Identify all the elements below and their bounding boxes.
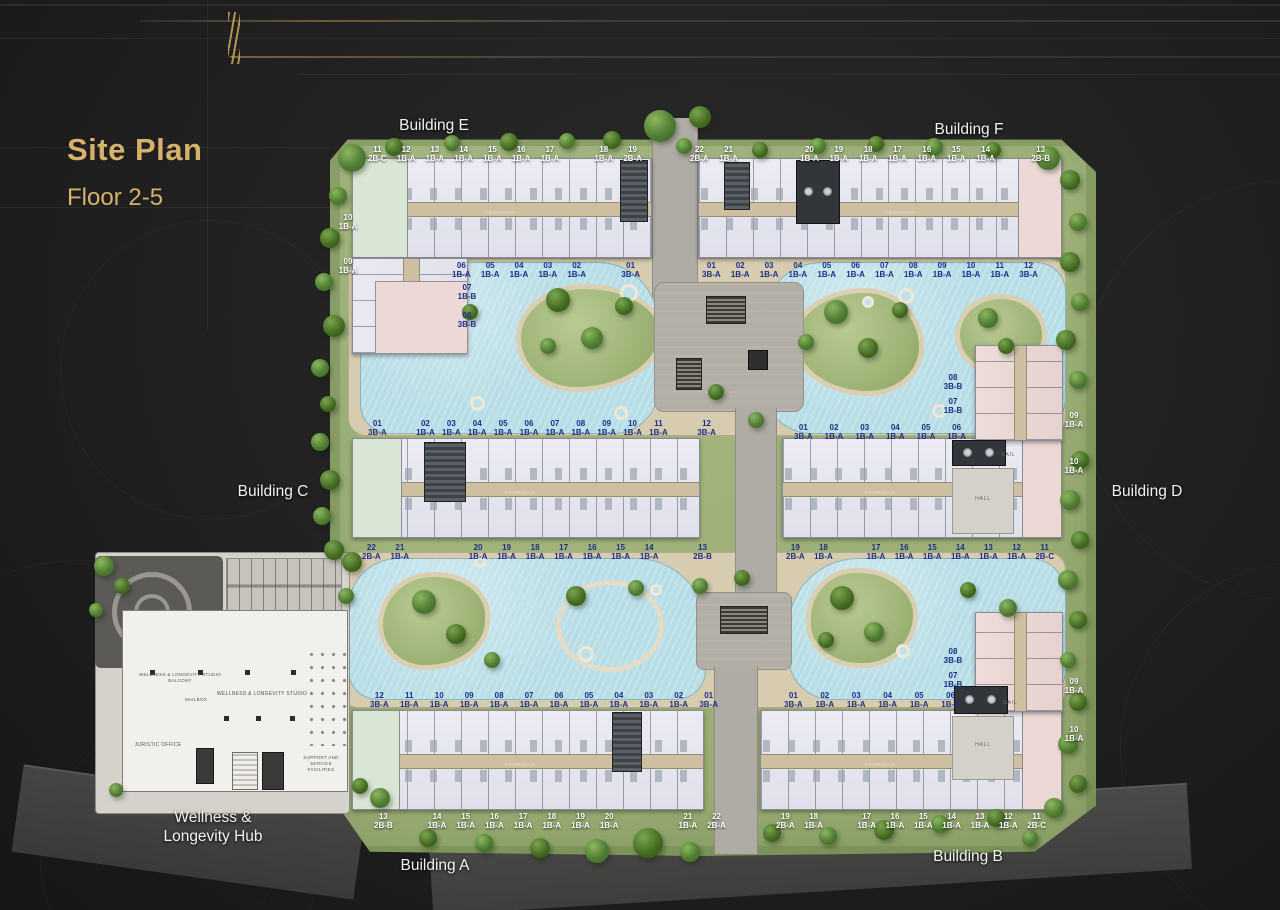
unit-label: 051B-A — [580, 692, 599, 710]
unit-label — [596, 262, 611, 280]
tree-icon — [585, 839, 609, 863]
tree-icon — [858, 338, 878, 358]
tree-icon — [1056, 330, 1076, 350]
unit-label — [394, 420, 409, 438]
tree-icon — [1022, 830, 1038, 846]
unit-row-d-top: 013B-A021B-A031B-A041B-A051B-A061B-A — [794, 424, 966, 442]
tree-icon — [114, 578, 130, 594]
unit-row-c-bottom: 222B-A211B-A201B-A191B-A181B-A171B-A161B… — [362, 544, 712, 562]
tree-icon — [313, 507, 331, 525]
unit-fixtures — [783, 468, 1061, 480]
unit-label: 013B-A — [702, 262, 721, 280]
hub-juristic-label: JURISTIC OFFICE — [135, 742, 182, 749]
unit-label: 151B-A — [483, 146, 502, 164]
unit-label: 111B-A — [649, 420, 668, 438]
tree-icon — [1060, 252, 1080, 272]
hub-stairs — [232, 752, 258, 790]
stair-core — [620, 160, 648, 222]
unit-label: 191B-A — [829, 146, 848, 164]
unit-label: 041B-A — [886, 424, 905, 442]
spa-circle — [896, 644, 910, 658]
tree-icon — [484, 652, 500, 668]
tree-icon — [998, 338, 1014, 354]
unit-label: 031B-A — [855, 424, 874, 442]
unit-label: 041B-A — [789, 262, 808, 280]
tree-icon — [370, 788, 390, 808]
unit-label: 201B-A — [800, 146, 819, 164]
unit-label: 083B-B — [944, 374, 963, 392]
unit-label: 121B-A — [397, 146, 416, 164]
hub-pillar — [245, 670, 250, 675]
corridor-label: CORRIDOR — [505, 762, 536, 767]
decor-line — [300, 74, 1280, 75]
unit-label: 171B-A — [554, 544, 573, 562]
building-d-label: Building D — [1112, 483, 1183, 501]
unit-label: 101B-A — [1065, 726, 1084, 744]
unit-label — [668, 544, 683, 562]
tree-icon — [1071, 531, 1089, 549]
service-core — [796, 160, 840, 224]
unit-col-b-pool: 083B-B071B-B — [936, 648, 970, 690]
unit-label: 041B-A — [610, 692, 629, 710]
unit-label: 171B-A — [541, 146, 560, 164]
unit-label: 041B-A — [878, 692, 897, 710]
unit-label: 151B-A — [947, 146, 966, 164]
tree-icon — [324, 540, 344, 560]
unit-label: 171B-A — [514, 813, 533, 831]
unit-row-f-inner: 013B-A021B-A031B-A041B-A051B-A061B-A071B… — [702, 262, 1038, 280]
unit-label: 061B-A — [452, 262, 471, 280]
tree-icon — [978, 308, 998, 328]
building-d-extension — [975, 345, 1063, 441]
corridor-label: CORRIDOR — [885, 210, 916, 215]
unit-label: 211B-A — [679, 813, 698, 831]
tree-icon — [546, 288, 570, 312]
tree-icon — [342, 552, 362, 572]
tree-icon — [1069, 611, 1087, 629]
hall-label: HALL — [975, 496, 991, 502]
hub-pillar — [224, 716, 229, 721]
tree-icon — [89, 603, 103, 617]
unit-label: 181B-A — [804, 813, 823, 831]
unit-label: 041B-A — [468, 420, 487, 438]
page-subtitle: Floor 2-5 — [67, 184, 163, 212]
unit-fixtures — [353, 770, 703, 782]
hub-elevator — [262, 752, 284, 790]
tree-icon — [633, 828, 663, 858]
unit-row-e-inner: 061B-A051B-A041B-A031B-A021B-A013B-A — [452, 262, 640, 280]
wellness-hub-label: Wellness & Longevity Hub — [163, 808, 262, 847]
unit-label: 132B-B — [374, 813, 393, 831]
unit-label: 181B-A — [526, 544, 545, 562]
tree-icon — [109, 783, 123, 797]
unit-label: 061B-A — [941, 692, 960, 710]
unit-label: 031B-A — [639, 692, 658, 710]
pavilion — [748, 350, 768, 370]
tree-icon — [94, 556, 114, 576]
tree-icon — [530, 838, 550, 858]
unit-label: 013B-A — [784, 692, 803, 710]
unit-label: 201B-A — [600, 813, 619, 831]
tree-icon — [320, 470, 340, 490]
decor-line — [230, 56, 1280, 58]
spa-circle — [862, 296, 874, 308]
tree-icon — [615, 297, 633, 315]
corridor-label: CORRIDOR — [865, 490, 896, 495]
tree-icon — [734, 570, 750, 586]
unit-label: 031B-A — [442, 420, 461, 438]
background-line — [0, 207, 330, 208]
unit-label: 013B-A — [794, 424, 813, 442]
unit-label: 192B-A — [623, 146, 642, 164]
unit-label: 112B-C — [1035, 544, 1054, 562]
tree-icon — [311, 433, 329, 451]
unit-label: 141B-A — [454, 146, 473, 164]
tree-icon — [329, 187, 347, 205]
hub-studio-label: WELLNESS & LONGEVITY STUDIO — [192, 691, 332, 698]
unit-label: 061B-A — [520, 420, 539, 438]
unit-label: 131B-A — [971, 813, 990, 831]
unit-label: 171B-A — [867, 544, 886, 562]
unit-label: 061B-A — [846, 262, 865, 280]
unit-label: 131B-A — [979, 544, 998, 562]
unit-label: 181B-A — [542, 813, 561, 831]
unit-label: 061B-A — [550, 692, 569, 710]
unit-label: 083B-B — [458, 312, 477, 330]
unit-label: 091B-A — [597, 420, 616, 438]
unit-label: 141B-A — [942, 813, 961, 831]
corridor-label: CORRIDOR — [865, 762, 896, 767]
corridor-label: CORRIDOR — [505, 490, 536, 495]
unit-label: 123B-A — [697, 420, 716, 438]
tree-icon — [960, 582, 976, 598]
unit-label: 083B-B — [944, 648, 963, 666]
tree-icon — [446, 624, 466, 644]
page-title: Site Plan — [67, 132, 202, 168]
unit-label: 091B-A — [1065, 678, 1084, 696]
walkway-middle — [735, 408, 777, 596]
stair-core — [424, 442, 466, 502]
unit-label: 201B-A — [469, 544, 488, 562]
unit-label: 081B-A — [571, 420, 590, 438]
tree-icon — [475, 834, 493, 852]
unit-label: 171B-A — [857, 813, 876, 831]
unit-label: 123B-A — [370, 692, 389, 710]
unit-label — [749, 146, 764, 164]
tree-icon — [628, 580, 644, 596]
unit-label — [444, 544, 459, 562]
unit-fixtures — [783, 498, 1061, 510]
building-f-label: Building F — [935, 121, 1004, 139]
unit-label: 021B-A — [815, 692, 834, 710]
unit-fixtures — [353, 498, 699, 510]
unit-label: 132B-B — [693, 544, 712, 562]
unit-fixtures — [761, 770, 1061, 782]
spa-circle — [578, 646, 594, 662]
unit-label: 211B-A — [391, 544, 410, 562]
tree-icon — [1069, 213, 1087, 231]
hub-balcony-label: WELLNESS & LONGEVITY STUDIO BALCONY — [135, 672, 225, 684]
unit-label: 071B-B — [944, 398, 963, 416]
wellness-hub-label-line1: Wellness & — [163, 808, 262, 827]
unit-col-e-left: 101B-A091B-A — [330, 214, 366, 276]
unit-label: 031B-A — [847, 692, 866, 710]
unit-label: 151B-A — [914, 813, 933, 831]
unit-label: 141B-A — [640, 544, 659, 562]
decor-gold-accent — [228, 12, 240, 64]
unit-label: 013B-A — [621, 262, 640, 280]
unit-label: 141B-A — [976, 146, 995, 164]
unit-label: 181B-A — [814, 544, 833, 562]
tree-icon — [338, 144, 366, 172]
unit-col-b-right: 091B-A101B-A — [1056, 678, 1092, 744]
unit-label: 101B-A — [339, 214, 358, 232]
unit-row-a-bottom: 132B-B141B-A151B-A161B-A171B-A181B-A191B… — [374, 813, 726, 831]
unit-row-d-bottom: 192B-A181B-A171B-A161B-A151B-A141B-A131B… — [786, 544, 1054, 562]
unit-label — [629, 813, 644, 831]
unit-label: 161B-A — [583, 544, 602, 562]
unit-row-b-top: 013B-A021B-A031B-A041B-A051B-A061B-A — [784, 692, 960, 710]
unit-label: 101B-A — [1065, 458, 1084, 476]
service-core — [954, 686, 1008, 714]
hub-pillar — [290, 716, 295, 721]
unit-label: 091B-A — [460, 692, 479, 710]
unit-label: 151B-A — [923, 544, 942, 562]
unit-label: 191B-A — [571, 813, 590, 831]
unit-label: 161B-A — [895, 544, 914, 562]
unit-label — [842, 544, 857, 562]
unit-label: 041B-A — [510, 262, 529, 280]
tree-icon — [323, 315, 345, 337]
tree-icon — [864, 622, 884, 642]
tree-icon — [412, 590, 436, 614]
unit-label: 151B-A — [456, 813, 475, 831]
unit-label: 211B-A — [719, 146, 738, 164]
hub-pillar — [256, 716, 261, 721]
unit-label: 123B-A — [1019, 262, 1038, 280]
building-c-mint-block — [352, 438, 402, 538]
unit-col-e-pool: 071B-B083B-B — [450, 284, 484, 330]
building-b-label: Building B — [933, 848, 1003, 866]
tree-icon — [748, 412, 764, 428]
unit-row-f-top: 222B-A211B-A201B-A191B-A181B-A171B-A161B… — [690, 146, 1050, 164]
unit-label: 071B-A — [875, 262, 894, 280]
unit-label — [569, 146, 584, 164]
unit-label: 171B-A — [888, 146, 907, 164]
background-line — [207, 0, 208, 330]
unit-label — [403, 813, 418, 831]
unit-fixtures — [699, 218, 1061, 230]
mail-label: MAIL — [1003, 700, 1018, 706]
unit-label: 101B-A — [430, 692, 449, 710]
tree-icon — [644, 110, 676, 142]
unit-label: 101B-A — [623, 420, 642, 438]
tree-icon — [338, 588, 354, 604]
stair-core — [724, 162, 750, 210]
background-swirl — [1080, 180, 1280, 600]
hub-service-block — [196, 748, 214, 784]
tree-icon — [892, 302, 908, 318]
unit-label: 071B-A — [520, 692, 539, 710]
tree-icon — [1044, 798, 1064, 818]
tree-icon — [320, 396, 336, 412]
unit-label: 091B-A — [933, 262, 952, 280]
tree-icon — [566, 586, 586, 606]
unit-label: 051B-A — [917, 424, 936, 442]
tree-icon — [540, 338, 556, 354]
unit-label: 131B-A — [426, 146, 445, 164]
unit-label: 111B-A — [400, 692, 419, 710]
unit-label: 051B-A — [910, 692, 929, 710]
tree-icon — [311, 359, 329, 377]
unit-label: 161B-A — [918, 146, 937, 164]
unit-row-a-top: 123B-A111B-A101B-A091B-A081B-A071B-A061B… — [370, 692, 718, 710]
tree-icon — [352, 778, 368, 794]
site-plan-page: Site Plan Floor 2-5 — [0, 0, 1280, 910]
unit-label: 091B-A — [1065, 412, 1084, 430]
unit-label: 112B-C — [1027, 813, 1046, 831]
building-a-wing — [352, 710, 704, 810]
building-f-pink-block — [1018, 158, 1062, 258]
unit-col-d-right: 091B-A101B-A — [1056, 412, 1092, 476]
unit-label — [774, 146, 789, 164]
spa-circle — [614, 406, 628, 420]
pavilion — [676, 358, 702, 390]
unit-label: 021B-A — [825, 424, 844, 442]
building-f-wing — [698, 158, 1062, 258]
unit-label: 132B-B — [1031, 146, 1050, 164]
pavilion — [720, 606, 768, 634]
unit-fixtures — [761, 740, 1061, 752]
spa-circle — [650, 584, 662, 596]
unit-label: 151B-A — [611, 544, 630, 562]
decor-line — [140, 20, 1280, 22]
unit-label — [675, 420, 690, 438]
building-e-label: Building E — [399, 117, 469, 135]
unit-label: 051B-A — [481, 262, 500, 280]
unit-label: 101B-A — [962, 262, 981, 280]
unit-label: 031B-A — [538, 262, 557, 280]
unit-label: 141B-A — [951, 544, 970, 562]
service-core — [952, 440, 1006, 466]
unit-label: 071B-B — [458, 284, 477, 302]
unit-label: 051B-A — [494, 420, 513, 438]
tree-icon — [1058, 570, 1078, 590]
tree-icon — [824, 300, 848, 324]
tree-icon — [830, 586, 854, 610]
unit-label: 121B-A — [1007, 544, 1026, 562]
building-c-wing — [352, 438, 700, 538]
unit-label: 161B-A — [512, 146, 531, 164]
unit-label: 191B-A — [497, 544, 516, 562]
unit-label: 161B-A — [886, 813, 905, 831]
unit-label: 051B-A — [817, 262, 836, 280]
hall-label: HALL — [975, 742, 991, 748]
unit-row-c-top: 013B-A021B-A031B-A041B-A051B-A061B-A071B… — [368, 420, 716, 438]
unit-label: 031B-A — [760, 262, 779, 280]
unit-label — [654, 813, 669, 831]
unit-label: 222B-A — [707, 813, 726, 831]
decor-line — [0, 4, 1280, 6]
tree-icon — [1071, 293, 1089, 311]
hub-support-label: SUPPORT AND SERVICE FACILITIES — [301, 755, 341, 773]
tree-icon — [1060, 652, 1076, 668]
unit-fixtures — [353, 468, 699, 480]
unit-label: 161B-A — [485, 813, 504, 831]
building-d-wing — [782, 438, 1062, 538]
unit-label: 121B-A — [999, 813, 1018, 831]
unit-label: 181B-A — [594, 146, 613, 164]
tree-icon — [1069, 775, 1087, 793]
decor-line — [0, 38, 1280, 39]
unit-fixtures — [699, 188, 1061, 200]
tree-icon — [1069, 371, 1087, 389]
unit-label: 181B-A — [859, 146, 878, 164]
spa-circle — [470, 396, 485, 411]
tree-icon — [692, 578, 708, 594]
tree-icon — [708, 384, 724, 400]
stair-core — [612, 712, 642, 772]
unit-label: 192B-A — [776, 813, 795, 831]
unit-label: 061B-A — [947, 424, 966, 442]
unit-label: 071B-B — [944, 672, 963, 690]
unit-label: 013B-A — [368, 420, 387, 438]
building-c-label: Building C — [238, 483, 309, 501]
hub-pillar — [291, 670, 296, 675]
building-a-label: Building A — [401, 857, 470, 875]
pavilion — [706, 296, 746, 324]
tree-icon — [581, 327, 603, 349]
wellness-hub-label-line2: Longevity Hub — [163, 827, 262, 846]
hub-mailbox-label: MAILBOX — [185, 697, 207, 703]
tree-icon — [680, 842, 700, 862]
tree-icon — [1060, 490, 1080, 510]
unit-row-e-top: 112B-C121B-A131B-A141B-A151B-A161B-A171B… — [368, 146, 642, 164]
unit-label: 021B-A — [669, 692, 688, 710]
unit-label: 021B-A — [567, 262, 586, 280]
unit-label: 081B-A — [904, 262, 923, 280]
unit-label: 091B-A — [339, 258, 358, 276]
unit-label — [419, 544, 434, 562]
unit-label: 141B-A — [428, 813, 447, 831]
hub-parking — [226, 558, 342, 614]
unit-label: 192B-A — [786, 544, 805, 562]
tree-icon — [419, 829, 437, 847]
unit-fixtures — [353, 740, 703, 752]
tree-icon — [689, 106, 711, 128]
unit-label: 112B-C — [368, 146, 387, 164]
unit-col-d-pool: 083B-B071B-B — [936, 374, 970, 416]
unit-label: 021B-A — [731, 262, 750, 280]
unit-label: 111B-A — [990, 262, 1009, 280]
unit-label: 081B-A — [490, 692, 509, 710]
unit-label: 222B-A — [690, 146, 709, 164]
unit-label: 071B-A — [546, 420, 565, 438]
unit-label — [833, 813, 848, 831]
mail-label: MAIL — [1001, 452, 1016, 458]
building-e-wing — [352, 158, 652, 258]
tree-icon — [1060, 170, 1080, 190]
tree-icon — [798, 334, 814, 350]
tree-icon — [818, 632, 834, 648]
tree-icon — [999, 599, 1017, 617]
building-b-wing — [760, 710, 1062, 810]
unit-row-b-bottom: 192B-A181B-A171B-A161B-A151B-A141B-A131B… — [776, 813, 1046, 831]
unit-label — [1006, 146, 1021, 164]
unit-label: 222B-A — [362, 544, 381, 562]
corridor-label: CORRIDOR — [485, 210, 516, 215]
unit-label: 021B-A — [416, 420, 435, 438]
